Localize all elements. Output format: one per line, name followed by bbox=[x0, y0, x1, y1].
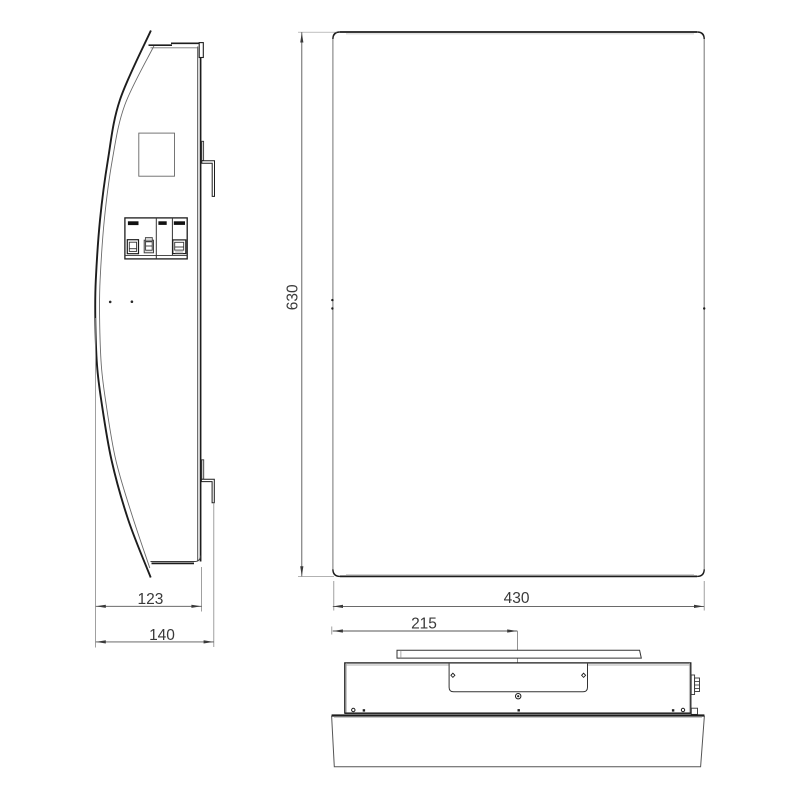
svg-text:140: 140 bbox=[149, 627, 175, 644]
svg-text:430: 430 bbox=[504, 590, 530, 607]
svg-text:630: 630 bbox=[285, 284, 302, 310]
svg-text:123: 123 bbox=[137, 591, 163, 608]
svg-text:215: 215 bbox=[411, 615, 437, 632]
